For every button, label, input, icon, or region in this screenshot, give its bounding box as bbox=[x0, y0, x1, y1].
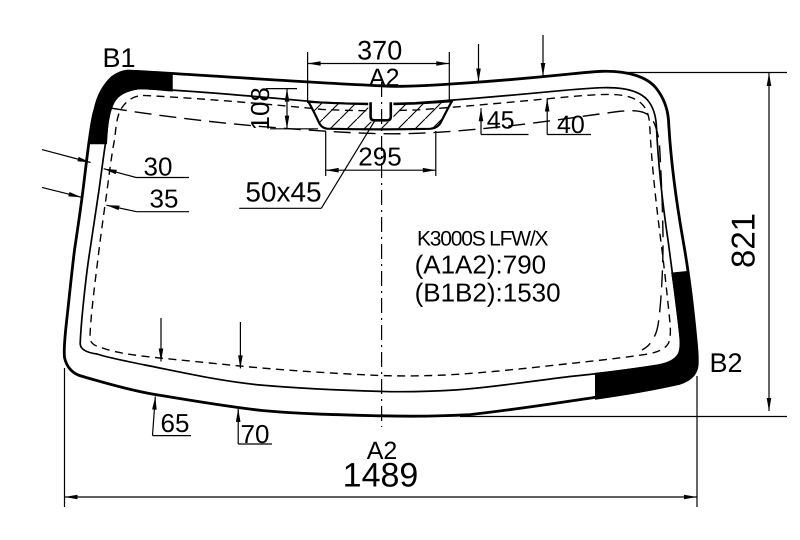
svg-text:A2: A2 bbox=[369, 64, 400, 92]
svg-text:370: 370 bbox=[357, 36, 402, 66]
svg-text:70: 70 bbox=[241, 419, 270, 449]
svg-text:B2: B2 bbox=[709, 348, 742, 378]
svg-text:50x45: 50x45 bbox=[245, 177, 321, 208]
svg-text:K3000S LFW/X: K3000S LFW/X bbox=[417, 227, 549, 250]
svg-text:B1: B1 bbox=[102, 43, 135, 73]
svg-text:1489: 1489 bbox=[343, 457, 419, 495]
svg-text:30: 30 bbox=[144, 152, 173, 182]
svg-text:(A1A2):790: (A1A2):790 bbox=[415, 250, 547, 280]
svg-text:821: 821 bbox=[725, 213, 762, 268]
svg-text:40: 40 bbox=[557, 111, 585, 139]
svg-text:(B1B2):1530: (B1B2):1530 bbox=[415, 278, 561, 308]
svg-text:45: 45 bbox=[487, 107, 515, 135]
svg-text:65: 65 bbox=[161, 408, 190, 438]
svg-text:35: 35 bbox=[150, 184, 179, 214]
svg-text:108: 108 bbox=[245, 87, 275, 130]
svg-text:295: 295 bbox=[358, 142, 401, 172]
